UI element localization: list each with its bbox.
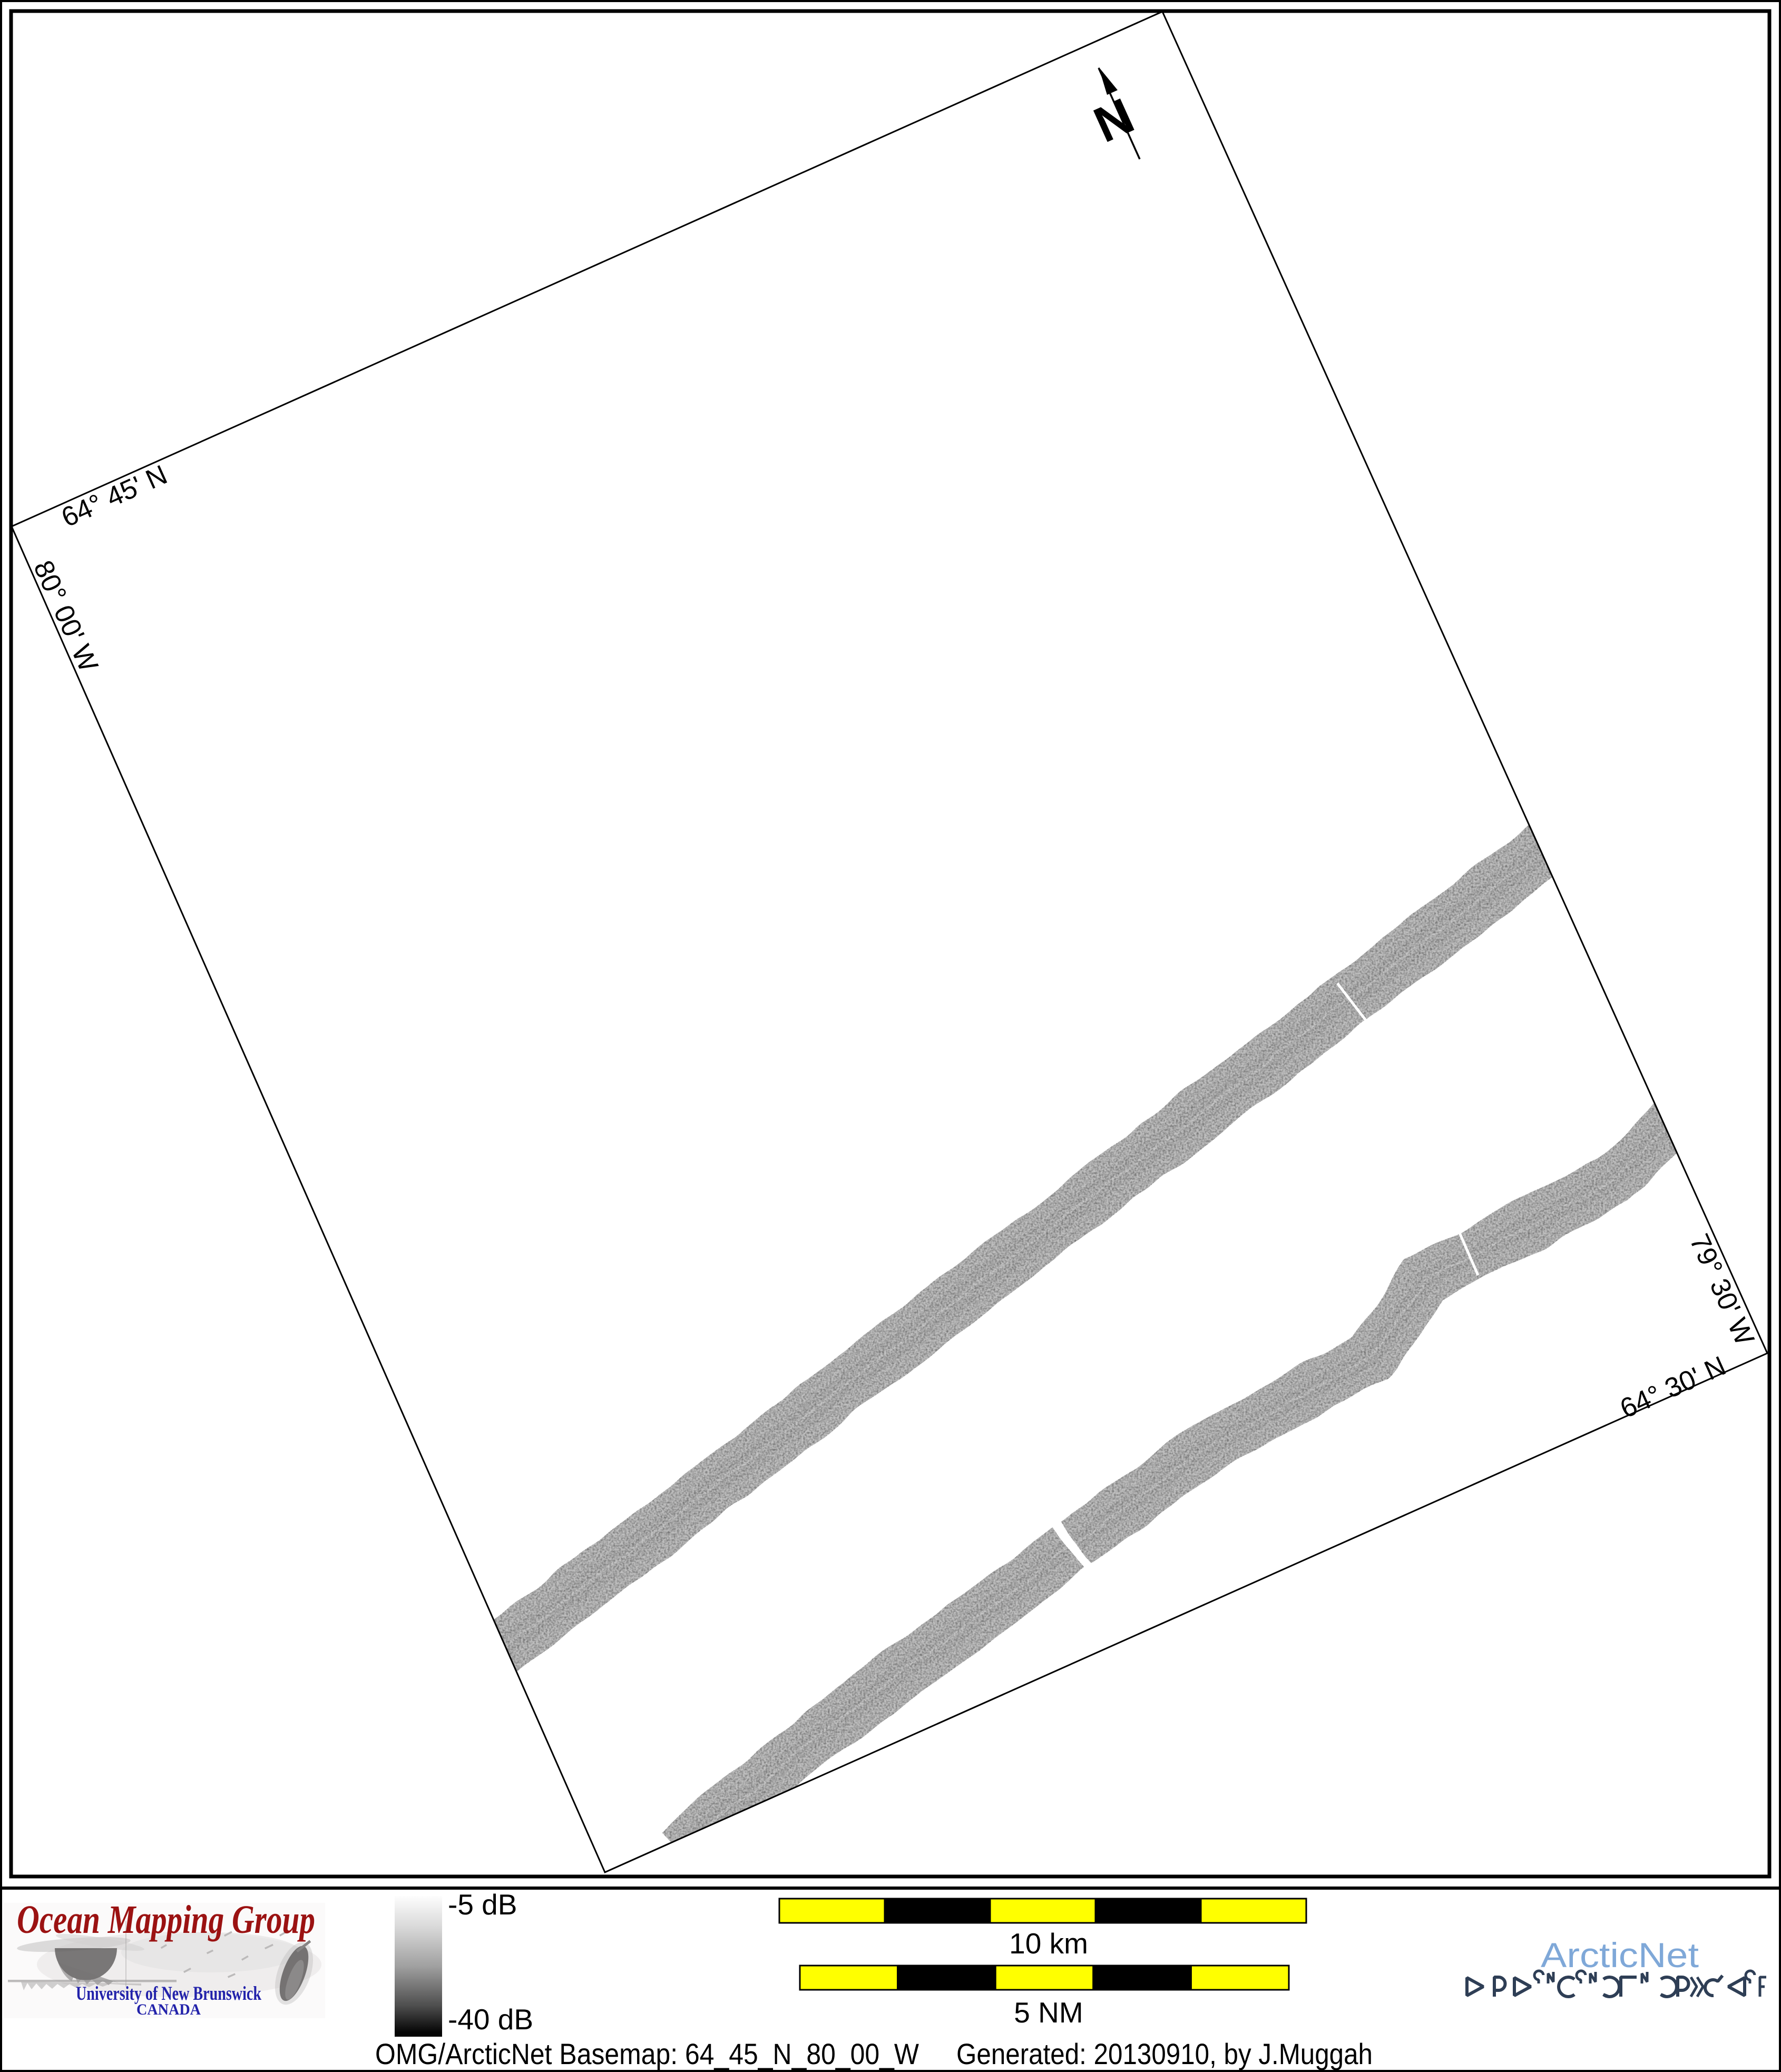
svg-text:Generated: 20130910, by J.Mugg: Generated: 20130910, by J.Muggah xyxy=(956,2037,1373,2070)
svg-text:5 NM: 5 NM xyxy=(1014,1996,1083,2029)
svg-text:-40 dB: -40 dB xyxy=(448,2003,533,2036)
svg-text:-5 dB: -5 dB xyxy=(448,1888,517,1921)
svg-text:10 km: 10 km xyxy=(1009,1927,1088,1960)
svg-text:CANADA: CANADA xyxy=(136,2001,201,2018)
svg-text:OMG/ArcticNet Basemap: 64_45_N: OMG/ArcticNet Basemap: 64_45_N_80_00_W xyxy=(375,2037,919,2070)
svg-text:Ocean Mapping Group: Ocean Mapping Group xyxy=(17,1898,315,1942)
svg-text:ArcticNet: ArcticNet xyxy=(1541,1936,1699,1975)
